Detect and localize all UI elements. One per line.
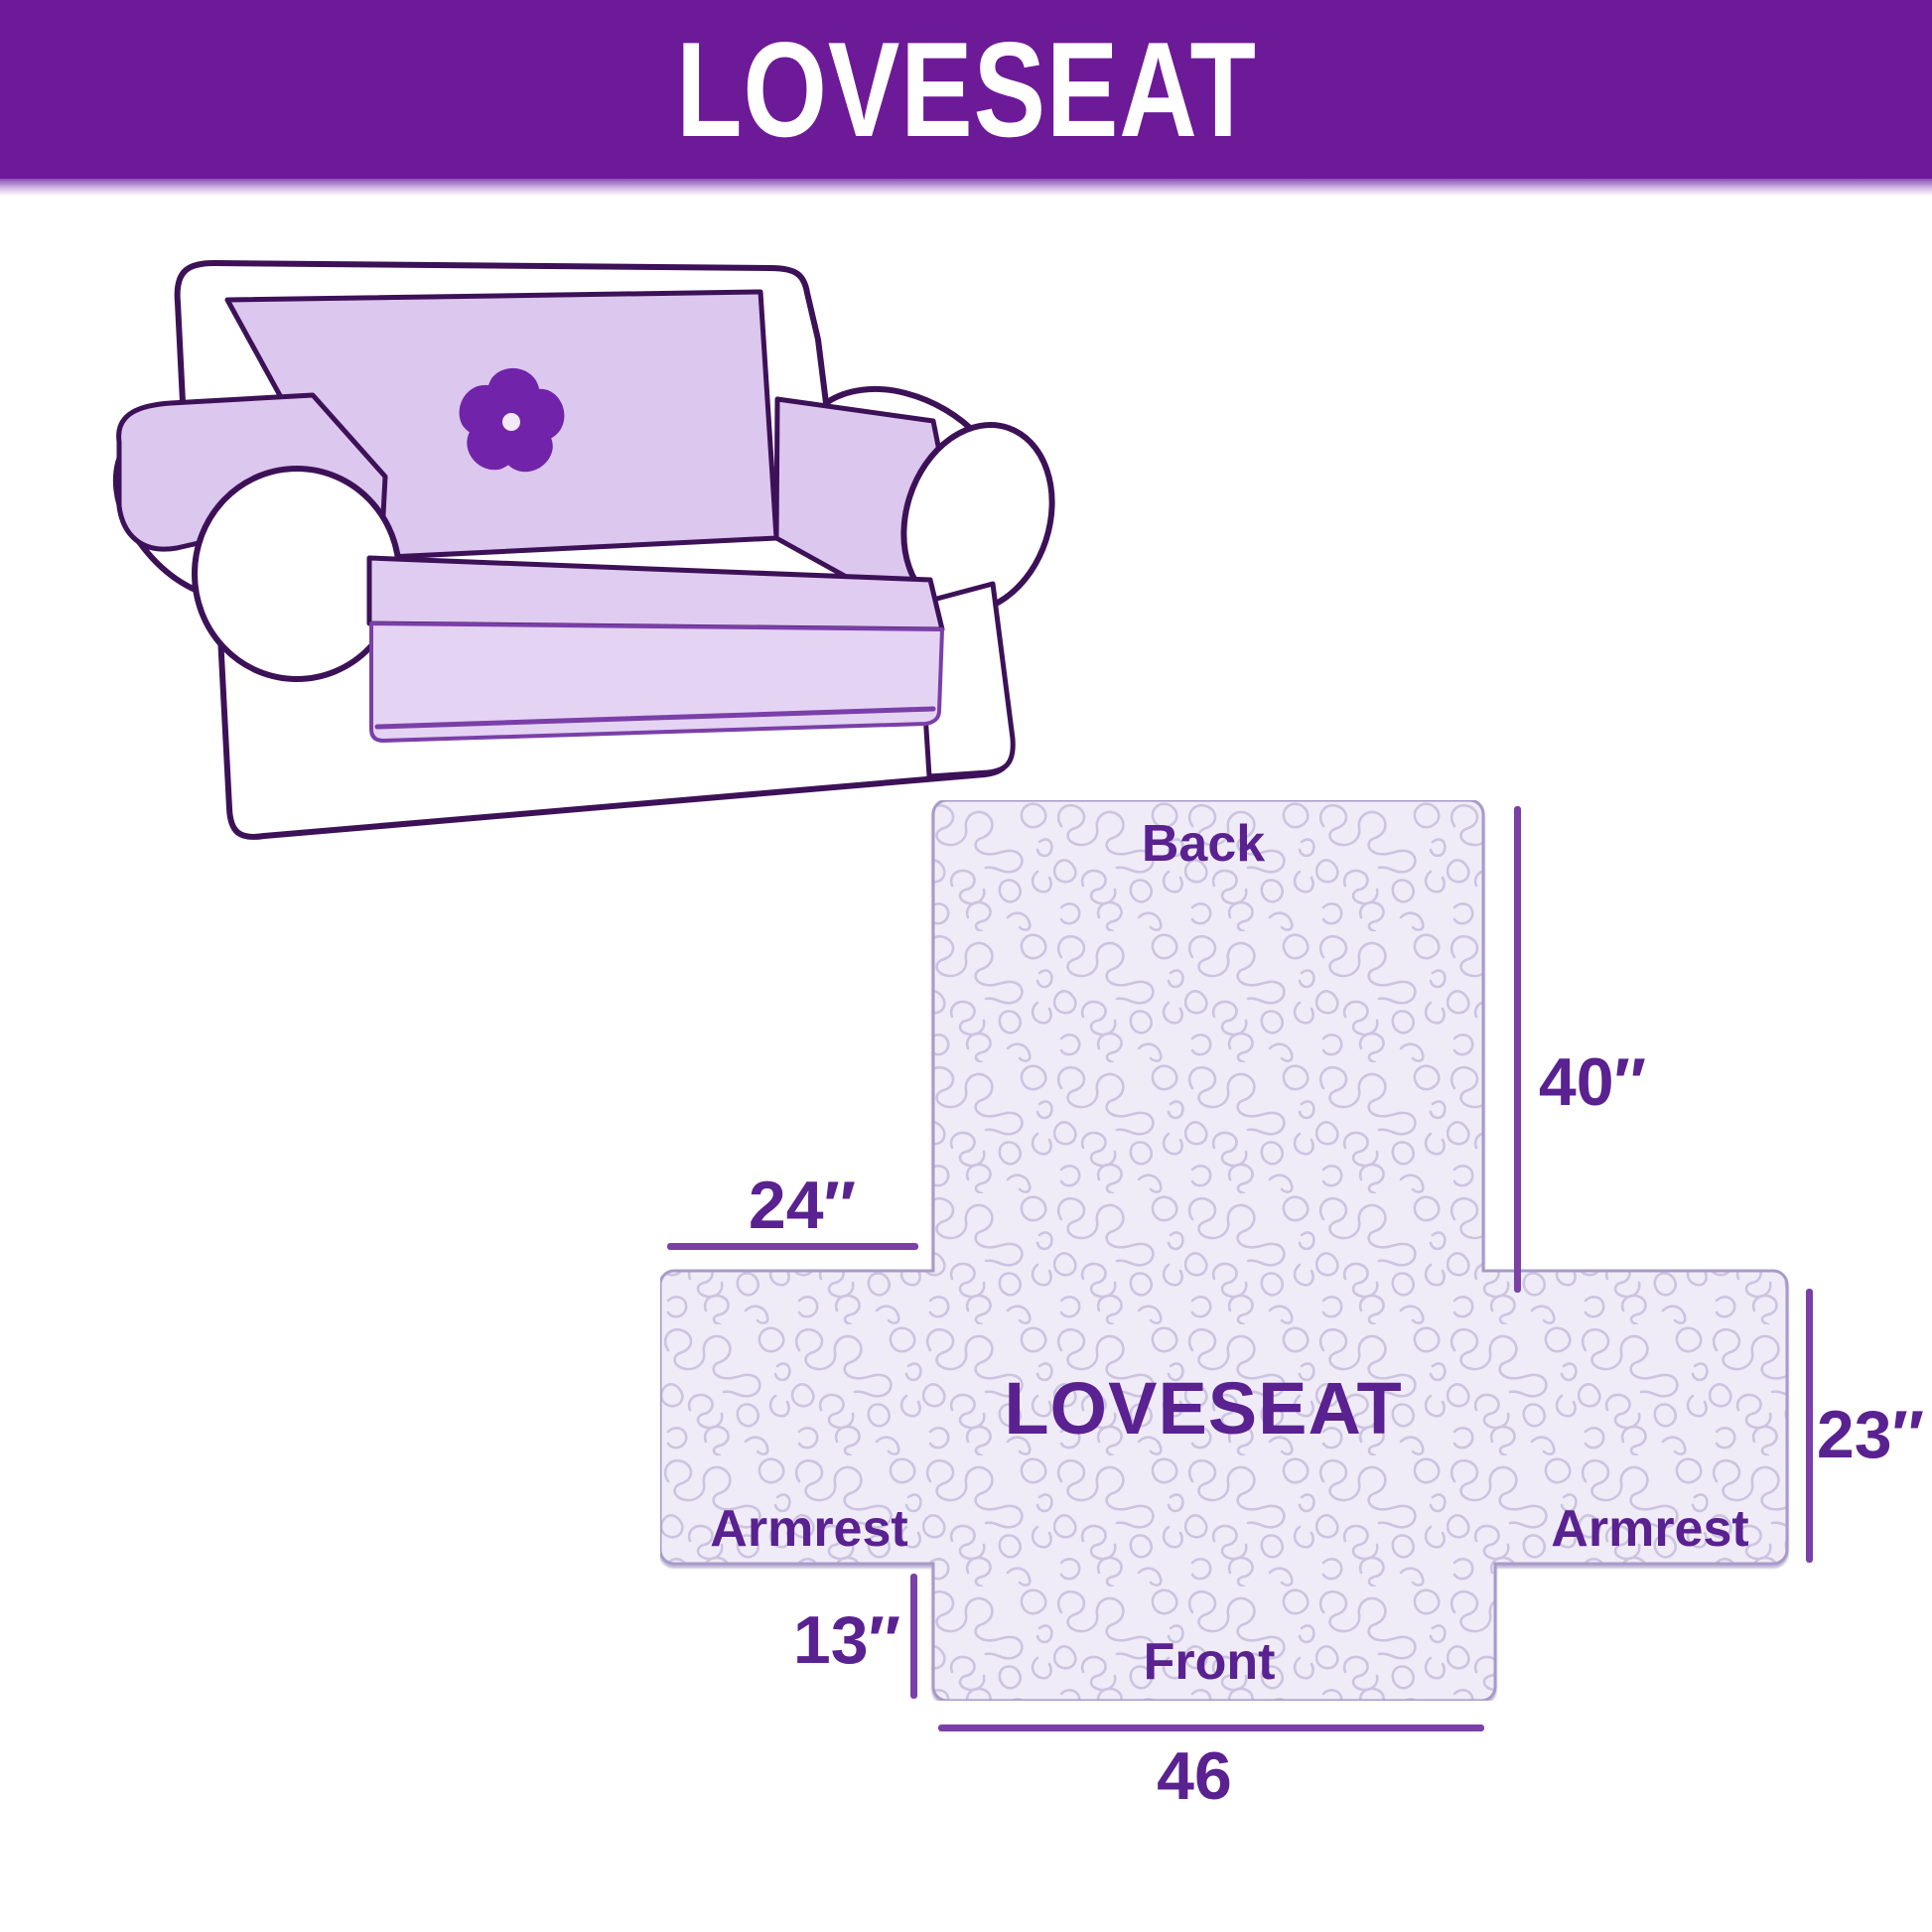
dim-armrest-height-label: 23″	[1817, 1401, 1924, 1468]
dim-armrest-top-label: 24″	[749, 1172, 856, 1239]
dim-line-13	[910, 1574, 917, 1699]
dim-front-width-label: 46	[1157, 1742, 1232, 1810]
dim-line-40	[1514, 806, 1521, 1293]
banner-divider	[0, 179, 1932, 197]
cover-cross-shape	[660, 800, 1787, 1701]
diagram-center-label: LOVESEAT	[1004, 1372, 1402, 1446]
page-title: LOVESEAT	[676, 22, 1257, 157]
dim-line-24	[667, 1243, 918, 1250]
infographic-canvas: LOVESEAT	[0, 0, 1932, 1932]
armrest-left-label: Armrest	[710, 1503, 907, 1555]
armrest-right-label: Armrest	[1551, 1503, 1748, 1555]
title-banner: LOVESEAT	[0, 0, 1932, 179]
loveseat-illustration	[79, 208, 1092, 884]
dim-back-height-label: 40″	[1539, 1048, 1646, 1116]
dim-line-23	[1806, 1289, 1813, 1563]
dim-front-height-label: 13″	[793, 1606, 900, 1674]
back-section-label: Back	[1142, 818, 1265, 870]
front-section-label: Front	[1144, 1636, 1276, 1688]
cover-layout-diagram	[660, 800, 1797, 1701]
dim-line-46	[938, 1725, 1484, 1731]
